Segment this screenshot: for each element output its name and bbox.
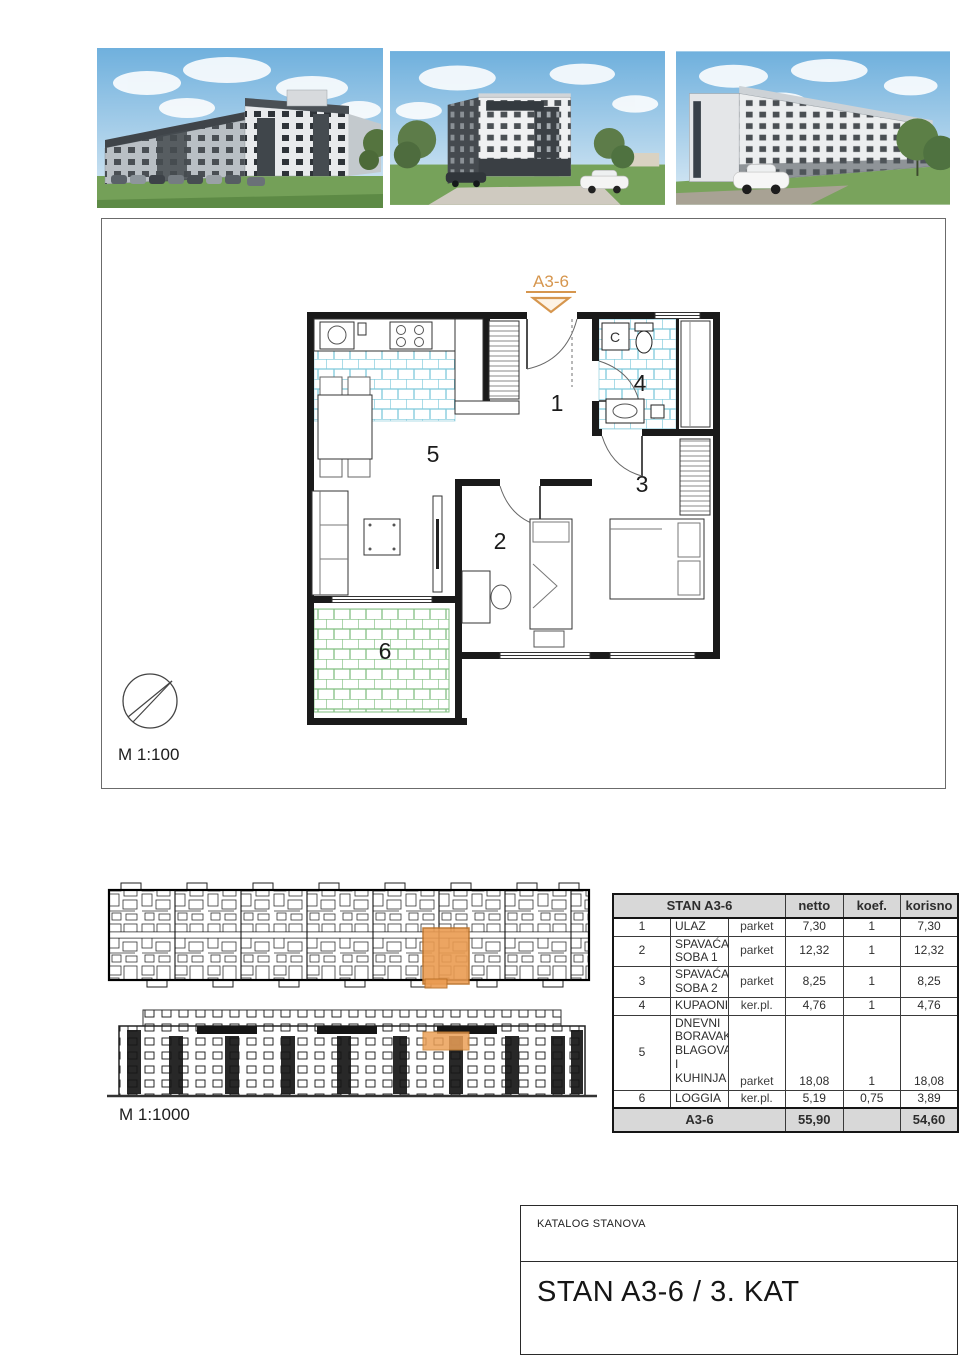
highlighted-unit-balcony [425,979,447,988]
col-korisno: korisno [901,894,959,918]
room-korisno: 18,08 [901,1015,959,1090]
room-netto: 12,32 [786,936,844,967]
washer-label: C [610,329,620,345]
title-block: KATALOG STANOVA STAN A3-6 / 3. KAT [520,1205,958,1355]
room-material: parket [728,936,786,967]
table-row: 2 SPAVAĆA SOBA 1 parket 12,32 1 12,32 [613,936,958,967]
room-korisno: 12,32 [901,936,959,967]
total-korisno: 54,60 [901,1108,959,1132]
exterior-render-3 [676,48,950,208]
unit-label-group: A3-6 [526,272,576,312]
total-koef [843,1108,901,1132]
room-6-label: 6 [379,638,392,664]
sink-icon [606,399,644,423]
hall-closet [489,321,519,399]
room-name: KUPAONICA [671,997,729,1015]
room-2-label: 2 [494,528,507,554]
room-name: SPAVAĆA SOBA 2 [671,967,729,998]
tv-cabinet [433,496,442,592]
room-5-label: 5 [427,441,440,467]
highlighted-unit-elevation [423,1032,469,1050]
double-bed [610,519,704,599]
floor-plan-drawing: A3-6 [102,219,944,787]
total-label: A3-6 [613,1108,786,1132]
room-name: SPAVAĆA SOBA 1 [671,936,729,967]
unit-label: A3-6 [533,272,569,291]
apartment-building [448,93,571,183]
floor-plan-frame: A3-6 [101,218,946,789]
entrance-arrow-icon [533,298,569,312]
room-name: ULAZ [671,918,729,936]
room-name: LOGGIA [671,1090,729,1108]
row-num: 6 [613,1090,671,1108]
room-korisno: 3,89 [901,1090,959,1108]
highlighted-unit-plan [423,928,469,984]
table-row: 6 LOGGIA ker.pl. 5,19 0,75 3,89 [613,1090,958,1108]
room-koef: 1 [843,967,901,998]
room-1-label: 1 [551,390,564,416]
building-elevation [107,1010,597,1096]
room-material: ker.pl. [728,997,786,1015]
table-header-row: STAN A3-6 netto koef. korisno [613,894,958,918]
site-plan-drawing: M 1:1000 [107,880,597,1125]
north-compass-icon [123,674,177,728]
room-material: parket [728,1015,786,1090]
table-row: 5 DNEVNI BORAVAK, BLAGOVAONA I KUHINJA p… [613,1015,958,1090]
bath-closet [681,321,710,427]
room-korisno: 4,76 [901,997,959,1015]
room-koef: 1 [843,1015,901,1090]
room-netto: 5,19 [786,1090,844,1108]
faucet-icon [358,323,366,335]
room-3-label: 3 [636,471,649,497]
single-bed [530,519,572,647]
kitchen-peninsula [455,401,519,414]
row-num: 5 [613,1015,671,1090]
room-koef: 0,75 [843,1090,901,1108]
row-num: 4 [613,997,671,1015]
col-koef: koef. [843,894,901,918]
table-row: 3 SPAVAĆA SOBA 2 parket 8,25 1 8,25 [613,967,958,998]
table-row: 1 ULAZ parket 7,30 1 7,30 [613,918,958,936]
room-4-label: 4 [634,370,647,396]
room-netto: 4,76 [786,997,844,1015]
room-koef: 1 [843,918,901,936]
room-netto: 8,25 [786,967,844,998]
washing-machine: C [602,323,629,350]
kitchen-counter [314,319,455,351]
room-netto: 7,30 [786,918,844,936]
desk-and-chair [462,571,511,623]
room-korisno: 8,25 [901,967,959,998]
room-korisno: 7,30 [901,918,959,936]
unit-title: STAN A3-6 / 3. KAT [521,1262,957,1309]
area-table: STAN A3-6 netto koef. korisno 1 ULAZ par… [612,893,959,1133]
table-title: STAN A3-6 [613,894,786,918]
room-material: parket [728,918,786,936]
sofa [312,491,348,595]
building-key-plan [109,883,589,988]
room-koef: 1 [843,997,901,1015]
row-num: 3 [613,967,671,998]
plan-scale-label: M 1:100 [118,745,179,764]
room-koef: 1 [843,936,901,967]
col-netto: netto [786,894,844,918]
room-netto: 18,08 [786,1015,844,1090]
row-num: 1 [613,918,671,936]
total-netto: 55,90 [786,1108,844,1132]
table-total-row: A3-6 55,90 54,60 [613,1108,958,1132]
exterior-render-2 [390,48,665,208]
table-row: 4 KUPAONICA ker.pl. 4,76 1 4,76 [613,997,958,1015]
exterior-render-1 [97,48,383,208]
catalog-page: A3-6 [0,0,961,1364]
site-scale-label: M 1:1000 [119,1105,190,1124]
toilet-icon [635,323,653,353]
coffee-table [364,519,400,555]
kitchen-tall-cabinet [455,319,483,401]
room-name: DNEVNI BORAVAK, BLAGOVAONA I KUHINJA [671,1015,729,1090]
room-material: ker.pl. [728,1090,786,1108]
catalog-label: KATALOG STANOVA [521,1206,957,1262]
stove-icon [390,322,432,349]
row-num: 2 [613,936,671,967]
shower-drain-icon [651,405,664,418]
room-material: parket [728,967,786,998]
wardrobe [680,439,710,515]
